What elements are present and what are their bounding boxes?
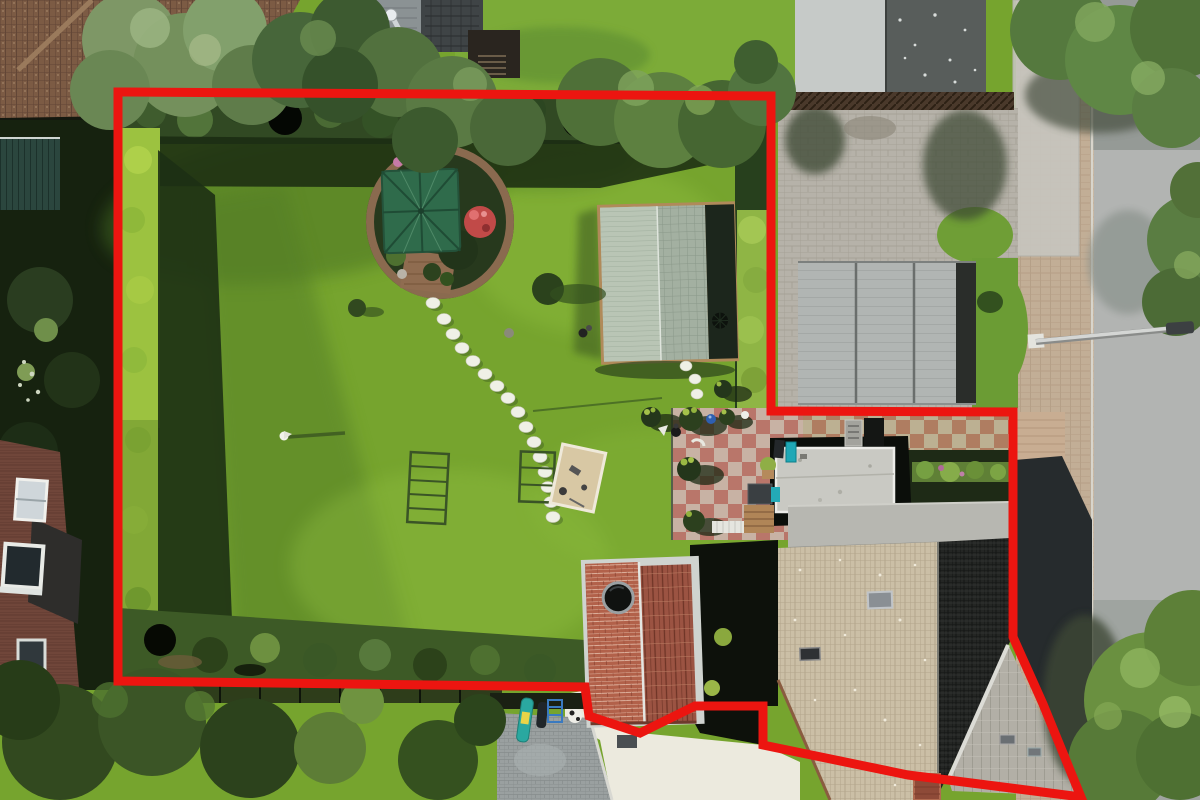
flower [938,465,944,471]
gazebo-parasol [382,169,461,254]
roof-vent [800,454,807,459]
chimney-vent [845,420,862,446]
window [3,544,44,589]
stone [504,328,514,338]
dark-panel [864,418,884,446]
stone [397,269,407,279]
lamp-head [1166,321,1195,335]
red-flower-bush [464,206,496,238]
blue-bucket [706,414,716,424]
white-item [741,411,749,419]
teal-shed-roof [0,138,60,210]
pear-bush [704,680,720,696]
aerial-photo-stage [0,0,1200,800]
garage-roof-top [788,0,1014,110]
roof-window [800,648,820,661]
hedge-left [116,128,232,665]
gable-window [1000,735,1015,744]
teal-box [771,487,780,502]
roof-window [868,592,893,609]
ac-unit [617,735,637,748]
shed-shadow [595,361,735,379]
figure [579,329,588,338]
dark-bin [773,440,785,459]
garden-shed [570,201,739,365]
teal-bin [786,442,796,462]
small-bush [714,628,732,646]
cow-pattern-item [568,709,582,723]
grill [748,484,772,504]
garage-roof-middle [798,262,976,404]
brick-outbuilding [581,556,705,728]
aerial-photo [0,0,1200,800]
flower [960,472,965,477]
gable-window [1028,748,1041,756]
